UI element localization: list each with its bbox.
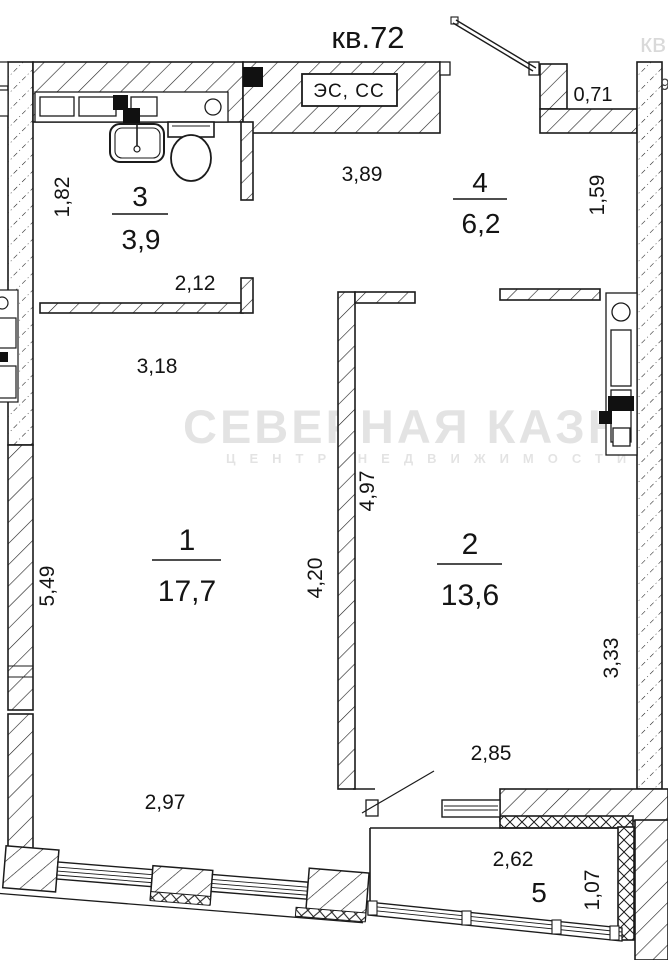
dim-bath-left: 1,82 <box>51 177 74 218</box>
room2-top-partition <box>500 289 600 300</box>
dim-hall-top: 3,89 <box>342 163 383 186</box>
room4-number: 4 <box>472 167 488 198</box>
entrance-door <box>440 17 539 75</box>
toilet-icon <box>168 122 214 181</box>
shaft-marker <box>113 95 128 110</box>
watermark-line1: СЕВЕРНАЯ КАЗН <box>183 400 625 453</box>
balcony-right-band <box>618 827 634 940</box>
sink-icon <box>110 124 164 162</box>
shaft-marker <box>599 411 612 424</box>
balcony-window-icon <box>442 800 500 817</box>
dim-bath-partition: 2,12 <box>175 272 216 295</box>
edge-fragment: 9 <box>660 75 668 94</box>
dim-top-niche: 0,71 <box>574 84 613 106</box>
walls <box>8 62 668 960</box>
vent-circle-icon <box>612 303 630 321</box>
room2-number: 2 <box>462 528 479 561</box>
door-jamb <box>440 62 450 75</box>
bathroom-partition <box>40 303 243 313</box>
room5-number: 5 <box>531 877 547 908</box>
bathroom-right-wall <box>241 122 253 200</box>
panel-box: ЭС, СС <box>302 74 397 106</box>
vent-circle-icon <box>205 99 221 115</box>
balcony-wall-crosshatch <box>500 816 633 828</box>
door-sill <box>366 800 378 816</box>
chimney-marker <box>243 67 263 87</box>
room3-area: 3,9 <box>122 224 161 255</box>
dim-balcony-width: 2,62 <box>493 848 534 871</box>
dim-room2-right: 3,33 <box>600 638 623 679</box>
room1-area: 17,7 <box>158 575 216 608</box>
balcony-opening <box>353 771 500 817</box>
bottom-right-block <box>635 820 668 960</box>
left-wall-lower <box>8 445 33 710</box>
panel-label: ЭС, СС <box>313 81 384 102</box>
left-wall-bottom <box>8 714 33 854</box>
floor-plan-page: СЕВЕРНАЯ КАЗН ЦЕНТР НЕДВИЖИМОСТИ кв <box>0 0 668 960</box>
middle-wall <box>338 292 355 789</box>
window-icon <box>57 862 153 887</box>
right-outer-wall <box>637 62 662 789</box>
dim-right-top: 1,59 <box>586 175 609 216</box>
room2-area: 13,6 <box>441 579 499 612</box>
door-leaf-icon <box>453 20 536 71</box>
dim-room1-bottom: 2,97 <box>145 791 186 814</box>
bathroom-partition-jamb <box>241 278 253 313</box>
window-icon <box>211 874 308 899</box>
dim-room1-left: 5,49 <box>36 566 59 607</box>
dim-room1-right: 4,20 <box>304 558 327 599</box>
apartment-title: кв.72 <box>331 20 404 55</box>
dim-hall-width: 3,18 <box>137 355 178 378</box>
middle-wall-stub <box>355 292 415 303</box>
watermark-corner-fragment: кв <box>640 28 666 58</box>
room3-number: 3 <box>132 181 148 212</box>
leader-line <box>362 771 434 813</box>
room1-number: 1 <box>179 524 196 557</box>
watermark-line2: ЦЕНТР НЕДВИЖИМОСТИ <box>226 451 640 466</box>
niche-pier <box>540 64 567 109</box>
dim-room2-left: 4,97 <box>356 471 379 512</box>
floor-plan-drawing: СЕВЕРНАЯ КАЗН ЦЕНТР НЕДВИЖИМОСТИ кв <box>0 0 668 960</box>
riser-marker <box>123 108 138 123</box>
shaft-marker <box>608 396 634 411</box>
room4-area: 6,2 <box>462 208 501 239</box>
dim-room2-bottom: 2,85 <box>471 742 512 765</box>
bottom-window-wall <box>0 843 369 923</box>
niche-band <box>540 109 637 133</box>
dim-balcony-depth: 1,07 <box>581 870 604 911</box>
